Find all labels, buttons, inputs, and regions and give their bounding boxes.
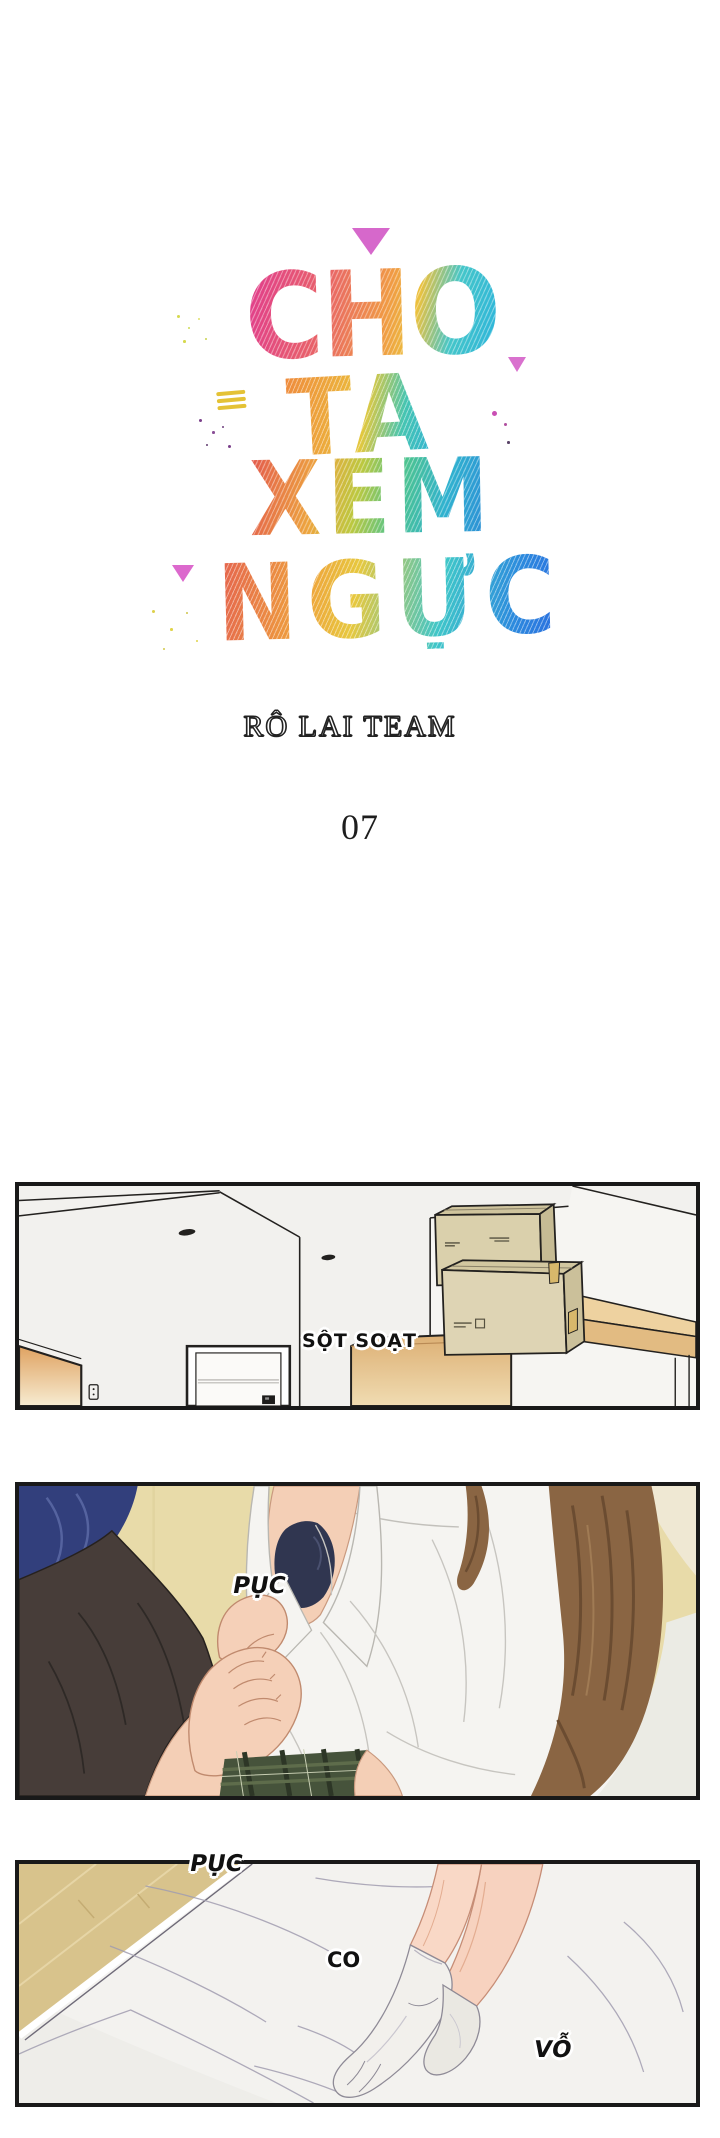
deco-dot <box>163 648 165 650</box>
panel-3-artwork <box>19 1864 696 2103</box>
comic-page: CHO TA XEM NGỰC RÔ LAI TEAM 07 <box>0 0 720 2138</box>
title-word-nguc: NGỰC <box>216 545 567 655</box>
sfx-puc-grip: PỤC <box>231 1573 288 1599</box>
deco-dot <box>170 628 173 631</box>
deco-triangle-icon <box>508 357 526 372</box>
comic-panel-3 <box>15 1860 700 2107</box>
sfx-vo: VỖ <box>532 2037 574 2063</box>
deco-dot <box>186 612 188 614</box>
deco-dot <box>205 338 207 340</box>
deco-dot <box>177 315 180 318</box>
deco-dot <box>152 610 155 613</box>
deco-dot <box>188 327 190 329</box>
title-word-xem: XEM <box>248 447 495 549</box>
panel-1-artwork <box>19 1186 696 1406</box>
deco-dot <box>198 318 200 320</box>
deco-dot <box>212 431 215 434</box>
deco-equals-icon <box>216 390 247 413</box>
deco-dot <box>206 444 208 446</box>
deco-dot <box>196 640 198 642</box>
sfx-sot-soat: SỘT SOẠT <box>302 1330 417 1352</box>
panel-2-artwork <box>19 1486 696 1796</box>
comic-panel-2 <box>15 1482 700 1800</box>
deco-dot <box>228 445 231 448</box>
deco-dot <box>222 426 224 428</box>
deco-dot <box>504 423 507 426</box>
sfx-puc-bed: PỤC <box>188 1851 245 1877</box>
deco-dot <box>199 419 202 422</box>
deco-dot <box>492 411 497 416</box>
chapter-number: 07 <box>341 806 379 848</box>
credit-text: RÔ LAI TEAM <box>243 710 456 744</box>
deco-triangle-icon <box>172 565 194 582</box>
comic-panel-1 <box>15 1182 700 1410</box>
deco-dot <box>507 441 510 444</box>
sfx-co: CO <box>327 1948 360 1972</box>
deco-dot <box>183 340 186 343</box>
